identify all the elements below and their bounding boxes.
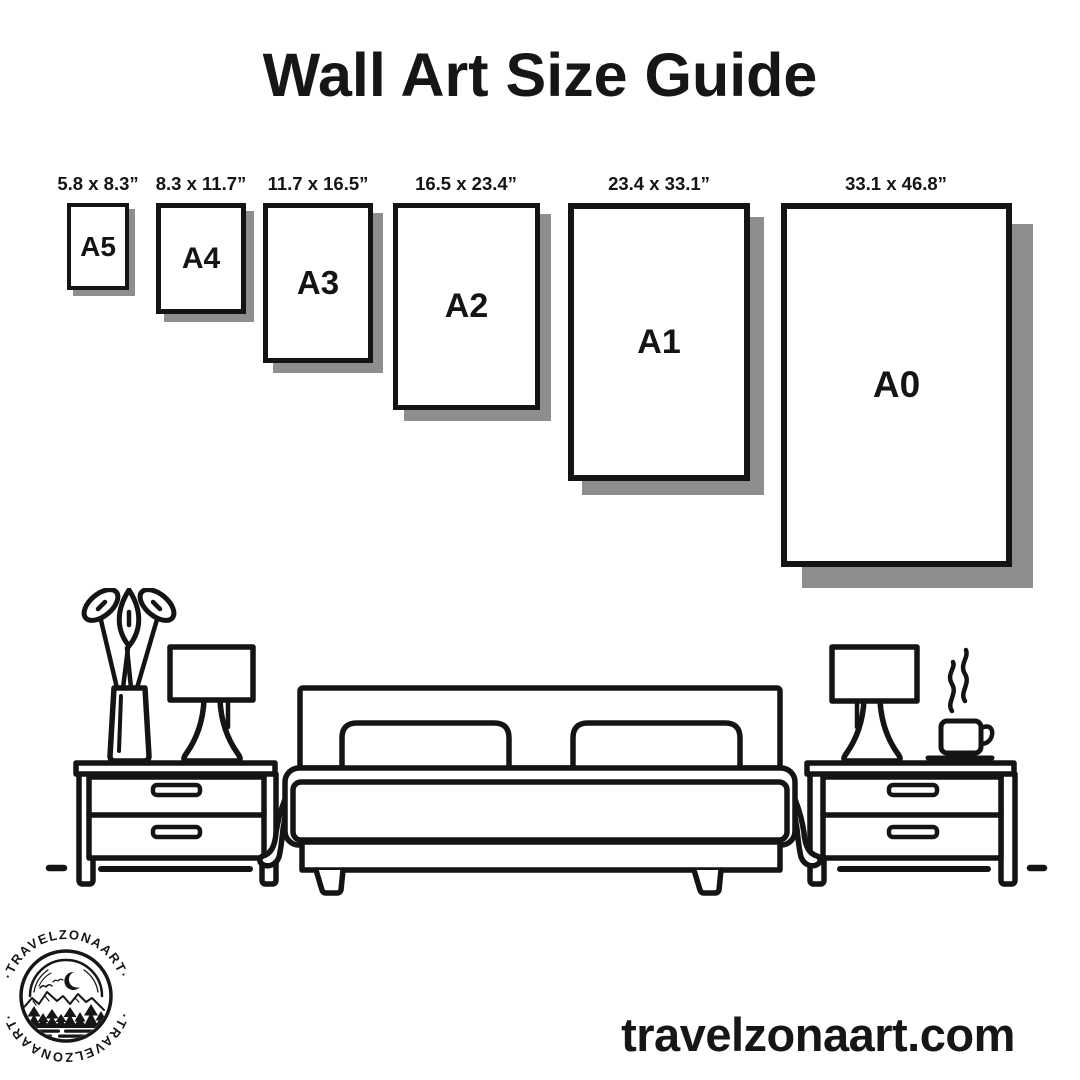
dimensions-label-a3: 11.7 x 16.5” — [268, 173, 369, 195]
nightstand-icon — [76, 763, 276, 884]
bed-icon — [260, 688, 820, 893]
size-frame-a3: A3 — [263, 203, 373, 363]
nightstand-icon — [807, 763, 1015, 884]
size-frame-a2: A2 — [393, 203, 540, 410]
bed-leg — [316, 870, 343, 893]
website-url: travelzonaart.com — [621, 1007, 1015, 1062]
plant-icon — [79, 588, 180, 761]
bed-base — [302, 842, 780, 870]
dimensions-label-a1: 23.4 x 33.1” — [608, 173, 710, 195]
dimensions-label-a0: 33.1 x 46.8” — [845, 173, 947, 195]
size-frame-a1: A1 — [568, 203, 750, 481]
pillow-icon — [342, 723, 509, 768]
lamp-icon — [170, 647, 253, 761]
size-frame-a5: A5 — [67, 203, 129, 290]
logo-badge: ·TRAVELZONAART· ·TRAVELZONAART· — [0, 928, 134, 1064]
bed-leg — [694, 870, 721, 893]
coffee-cup-icon — [928, 650, 992, 758]
page-title: Wall Art Size Guide — [0, 40, 1080, 110]
pillow-icon — [573, 723, 740, 768]
size-frame-a0: A0 — [781, 203, 1012, 567]
size-frame-a4: A4 — [156, 203, 246, 314]
lamp-icon — [832, 647, 917, 761]
duvet-panel — [293, 782, 787, 840]
size-guide-poster: Wall Art Size Guide 5.8 x 8.3” 8.3 x 11.… — [0, 0, 1080, 1080]
bedroom-illustration — [0, 588, 1080, 900]
dimensions-label-a4: 8.3 x 11.7” — [156, 173, 247, 195]
dimensions-label-a5: 5.8 x 8.3” — [57, 173, 138, 195]
dimensions-label-a2: 16.5 x 23.4” — [415, 173, 517, 195]
